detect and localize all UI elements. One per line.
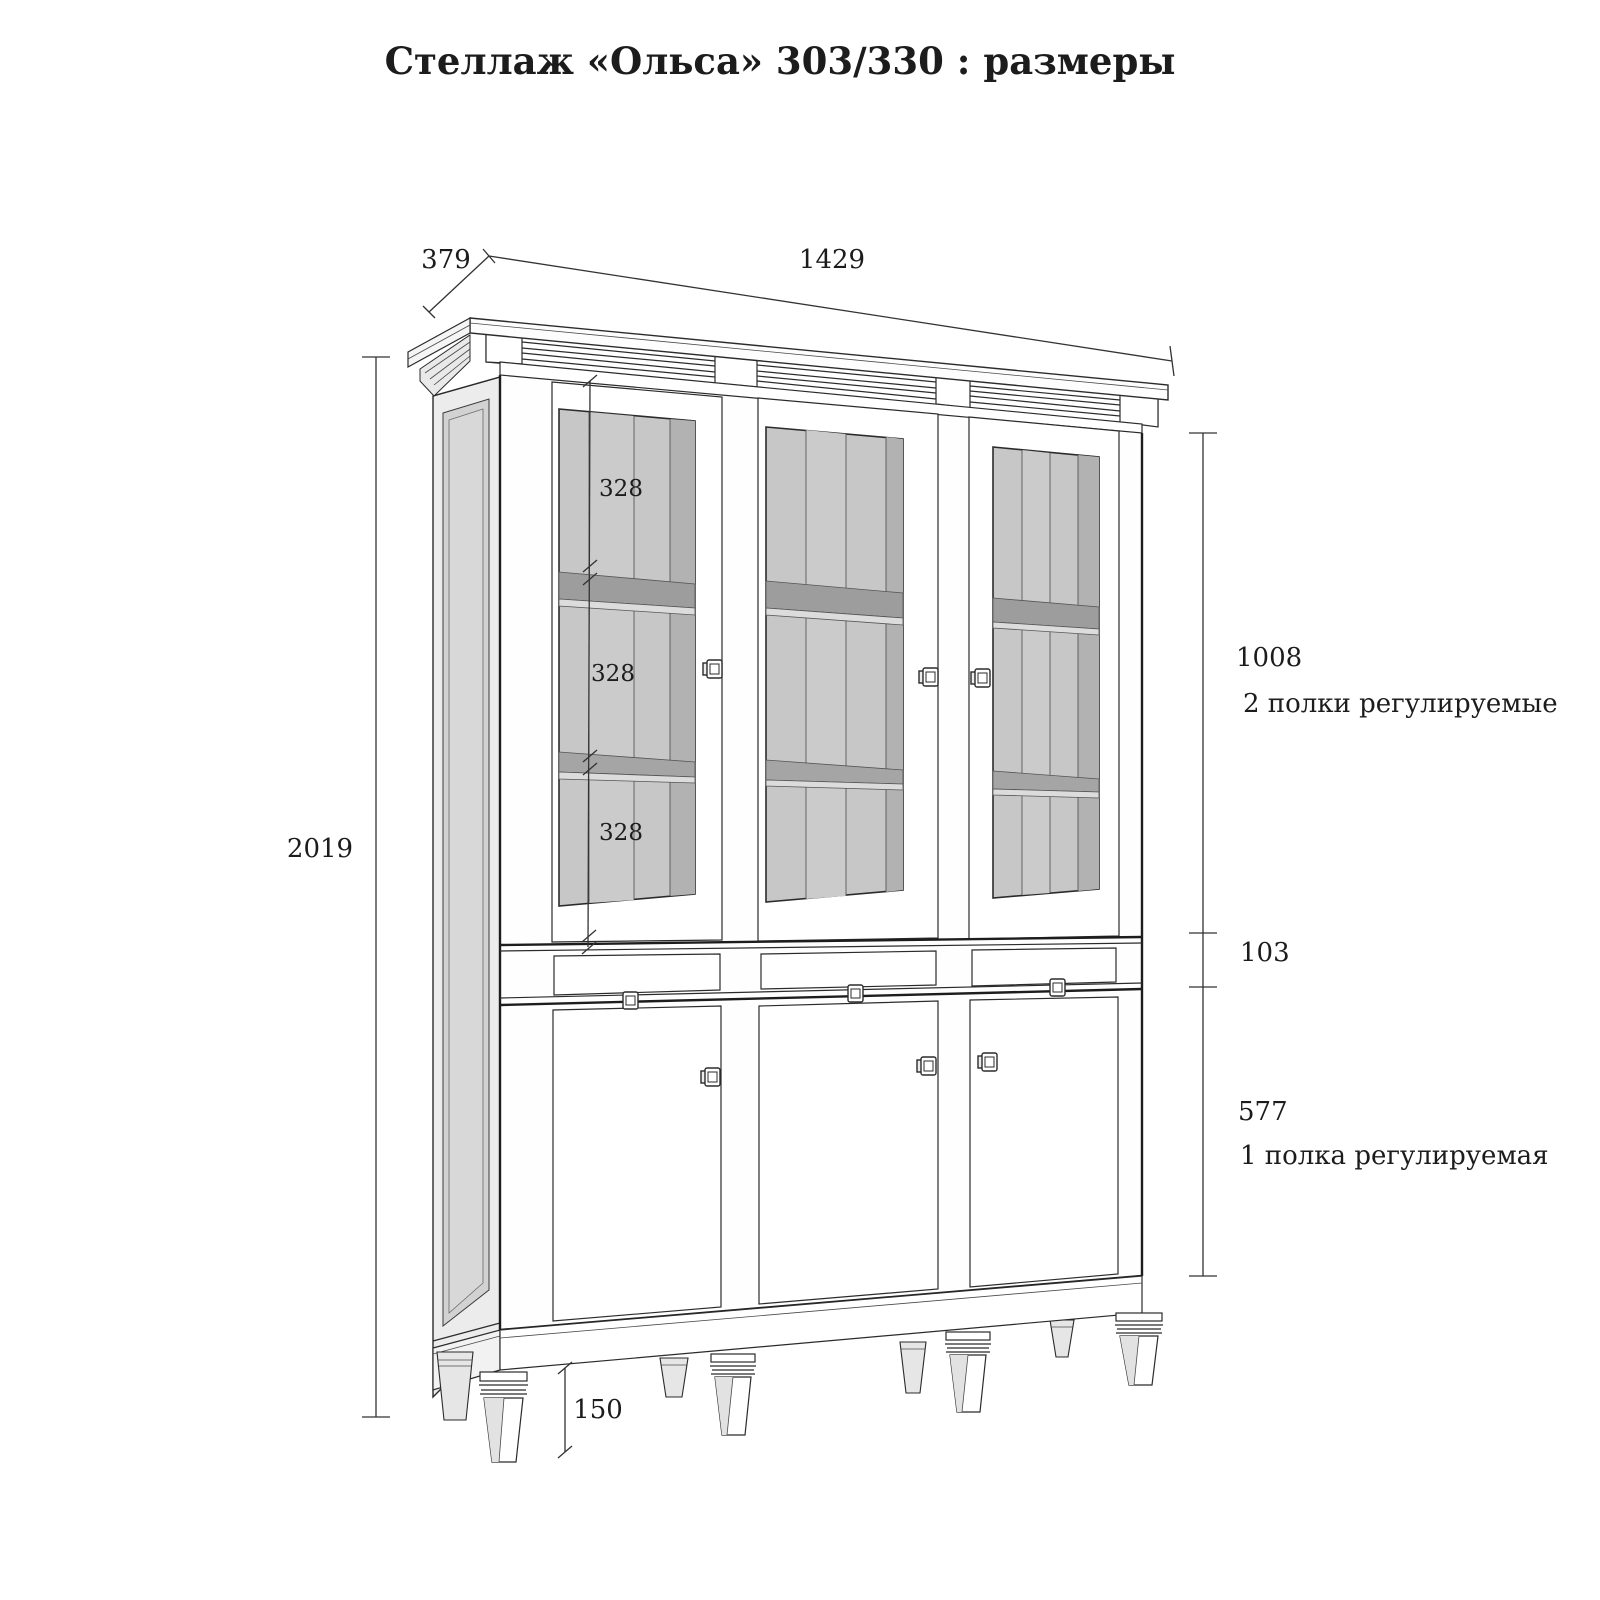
dim-gap2-label: 328 [591,661,635,687]
cabinet-side-panel [433,377,500,1397]
drawing-page: Стеллаж «Ольса» 303/330 : размеры [0,0,1600,1600]
knob-drawer-middle [848,985,863,1002]
lower-door-left [553,1006,721,1321]
dim-leg-height: 150 [558,1362,623,1458]
dim-width-label: 1429 [799,245,865,275]
dim-sections: 1008 2 полки регулируемые 103 577 1 полк… [1189,433,1558,1276]
lower-door-right [970,997,1118,1287]
glass-doors [552,382,1119,942]
dim-upper-label: 1008 [1236,643,1302,673]
knob-lower-door-middle [917,1057,936,1075]
note-upper-shelves: 2 полки регулируемые [1243,689,1558,719]
dim-depth: 379 [421,245,495,318]
drawer-left [554,954,720,995]
knob-glass-door-middle [919,668,938,686]
leg-front-3 [945,1332,991,1412]
drawer-middle [761,951,936,989]
furniture-dimension-drawing: Стеллаж «Ольса» 303/330 : размеры [0,0,1600,1600]
dim-depth-label: 379 [421,245,471,275]
dim-gap1-label: 328 [599,476,643,502]
knob-glass-door-left [703,660,722,678]
knob-drawer-left [623,992,638,1009]
dim-height: 2019 [287,357,390,1417]
dim-lower-label: 577 [1238,1097,1288,1127]
lower-door-middle [759,1001,938,1304]
glass-door-right [969,417,1119,939]
dim-gap3-label: 328 [599,820,643,846]
drawer-right [972,948,1116,986]
knob-lower-door-right [978,1053,997,1071]
glass-door-left [552,382,722,942]
knob-lower-door-left [701,1068,720,1086]
lower-doors [553,997,1118,1321]
dim-height-label: 2019 [287,834,353,864]
dim-drawer-label: 103 [1240,938,1290,968]
note-lower-shelf: 1 полка регулируемая [1240,1141,1549,1171]
leg-front-2 [710,1354,756,1435]
knob-drawer-right [1050,979,1065,996]
leg-front-4 [1115,1313,1163,1385]
dim-leg-label: 150 [573,1395,623,1425]
glass-door-middle [758,398,938,941]
page-title: Стеллаж «Ольса» 303/330 : размеры [385,39,1176,83]
leg-front-1 [479,1372,528,1462]
knob-glass-door-right [971,669,990,687]
